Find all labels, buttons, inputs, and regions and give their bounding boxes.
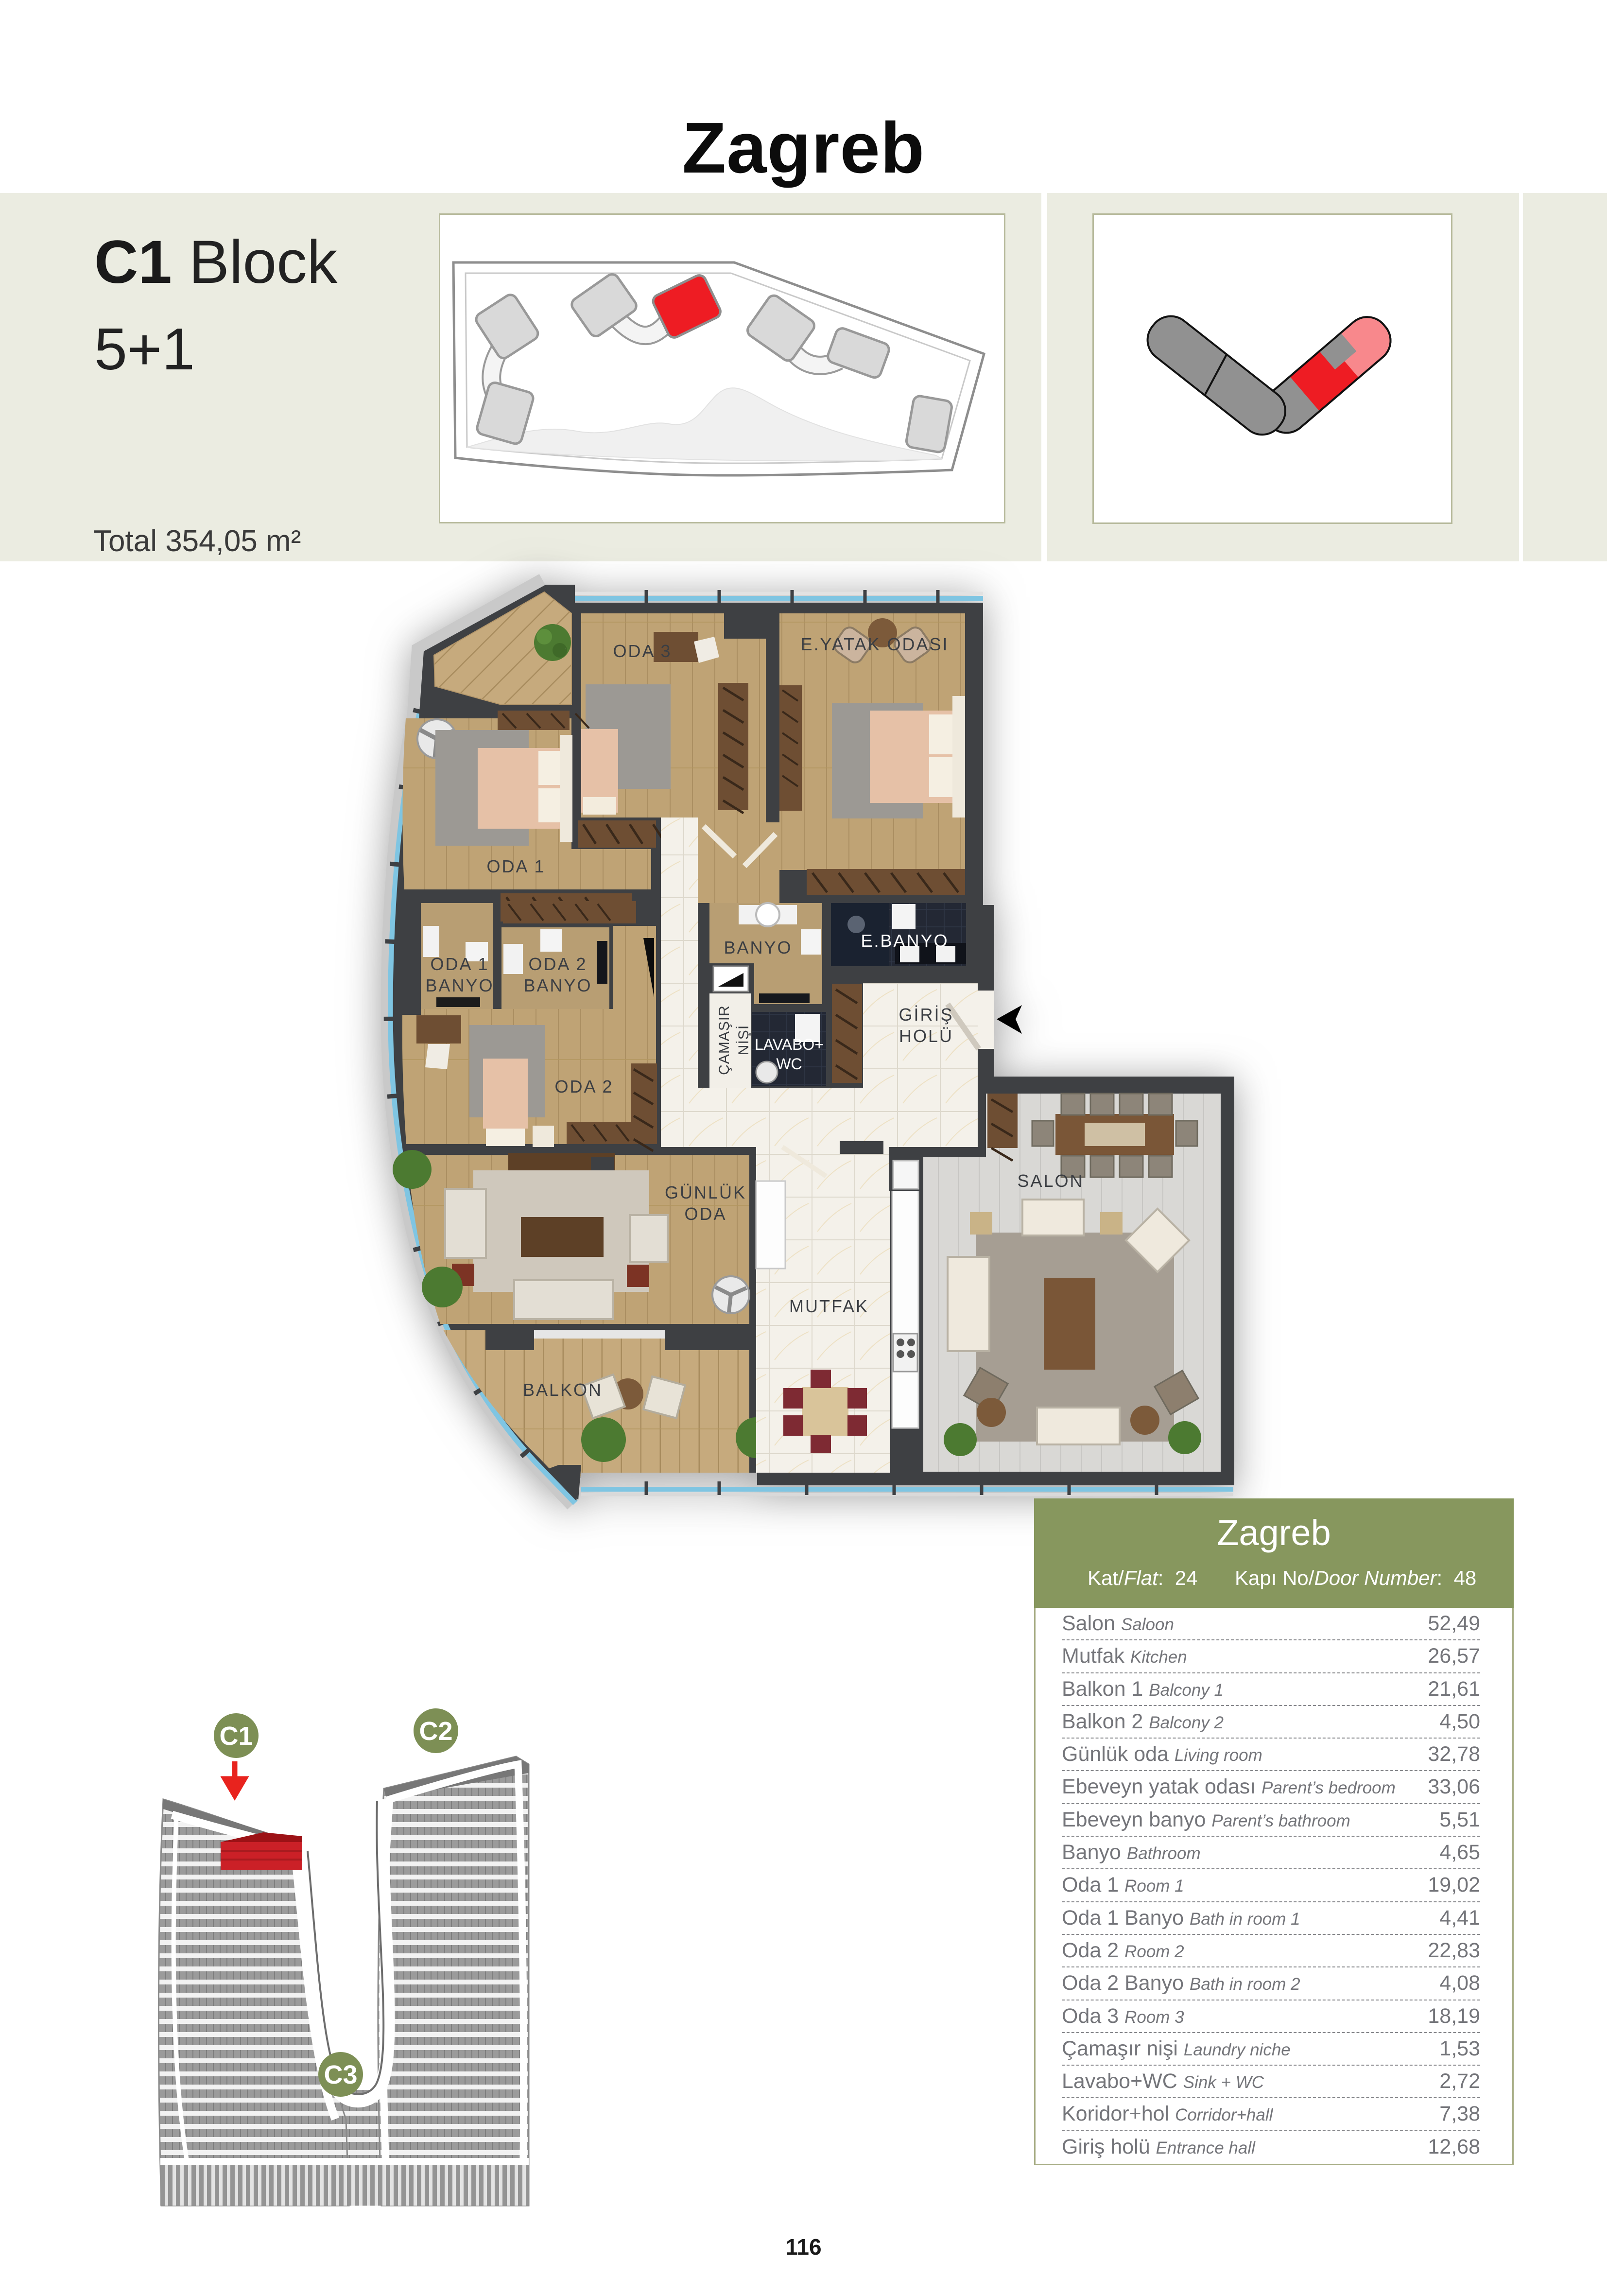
svg-text:E.YATAK ODASI: E.YATAK ODASI [800, 634, 949, 654]
svg-text:SALON: SALON [1017, 1171, 1084, 1191]
svg-text:HOLÜ: HOLÜ [899, 1026, 953, 1046]
svg-text:C2: C2 [419, 1717, 452, 1746]
svg-text:WC: WC [776, 1055, 802, 1073]
svg-text:BANYO: BANYO [523, 975, 592, 995]
svg-text:LAVABO+: LAVABO+ [755, 1036, 824, 1053]
svg-text:GÜNLÜK: GÜNLÜK [665, 1183, 746, 1202]
svg-text:ODA 2: ODA 2 [528, 954, 587, 974]
svg-text:ODA 1: ODA 1 [486, 856, 545, 876]
svg-text:ODA 2: ODA 2 [554, 1077, 613, 1096]
svg-text:ODA: ODA [684, 1204, 726, 1224]
svg-text:BANYO: BANYO [724, 938, 792, 957]
svg-text:GİRİŞ: GİRİŞ [899, 1005, 953, 1025]
svg-text:BANYO: BANYO [425, 975, 494, 995]
svg-text:ODA 1: ODA 1 [430, 954, 489, 974]
svg-text:C1: C1 [219, 1722, 253, 1751]
svg-text:BALKON: BALKON [523, 1380, 603, 1400]
svg-text:ÇAMAŞIR: ÇAMAŞIR [716, 1005, 732, 1075]
svg-text:MUTFAK: MUTFAK [789, 1296, 869, 1316]
svg-text:C3: C3 [324, 2060, 357, 2089]
svg-text:ODA 3: ODA 3 [613, 641, 672, 661]
svg-text:E.BANYO: E.BANYO [861, 931, 949, 951]
svg-text:NİŞİ: NİŞİ [736, 1025, 752, 1055]
